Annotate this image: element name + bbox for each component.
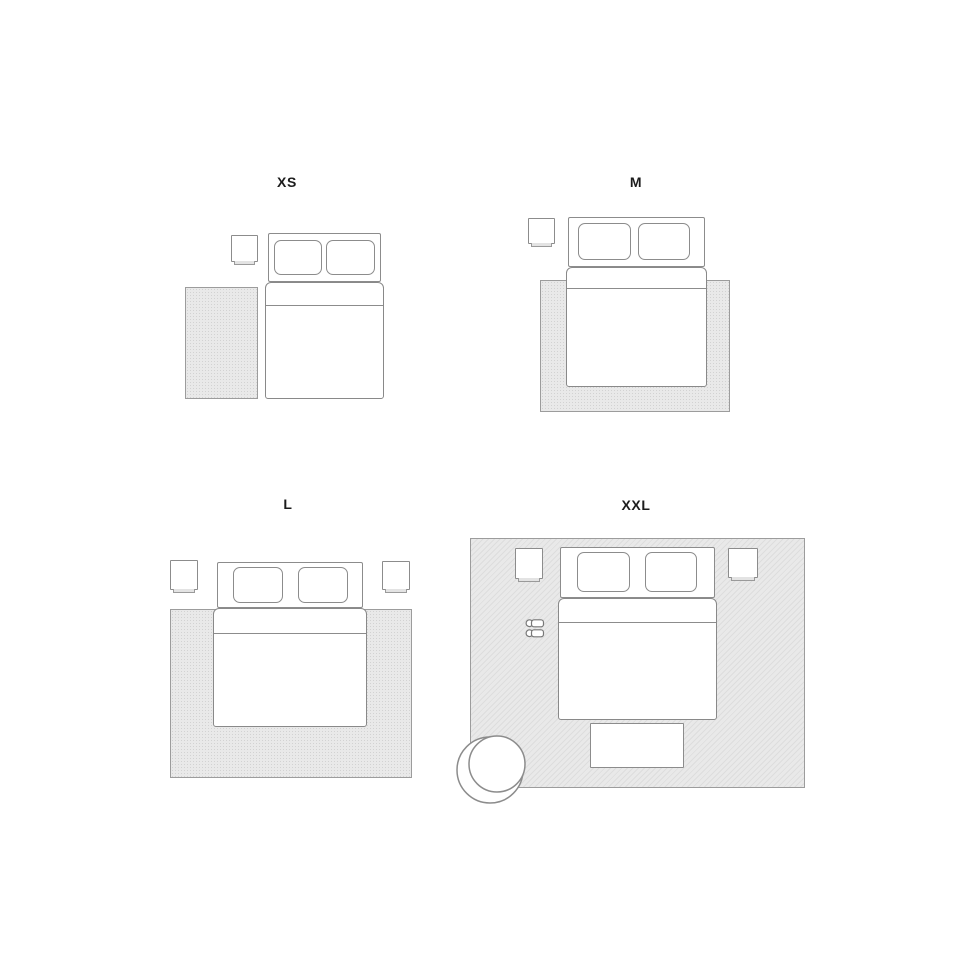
- nightstand-icon: [515, 548, 543, 579]
- size-label-m: M: [630, 174, 642, 190]
- bed-icon: [566, 217, 707, 387]
- pillow-icon: [578, 223, 631, 260]
- rug-size-guide-diagram: XS M L XXL: [0, 0, 970, 971]
- nightstand-icon: [382, 561, 410, 590]
- pillow-icon: [298, 567, 348, 603]
- bed-body: [558, 598, 717, 720]
- nightstand-icon: [728, 548, 758, 578]
- bed-body: [213, 608, 367, 727]
- nightstand-icon: [170, 560, 198, 590]
- pillow-icon: [638, 223, 690, 260]
- size-label-xxl: XXL: [621, 497, 650, 513]
- duvet-fold-line: [559, 599, 716, 623]
- bed-icon: [213, 562, 367, 727]
- slippers-icon: [525, 618, 547, 640]
- pillow-icon: [577, 552, 630, 592]
- bed-body: [265, 282, 384, 399]
- pillow-icon: [326, 240, 375, 275]
- pillow-icon: [274, 240, 322, 275]
- pillow-icon: [233, 567, 283, 603]
- pillow-icon: [645, 552, 697, 592]
- size-label-xs: XS: [277, 174, 297, 190]
- duvet-fold-line: [266, 283, 383, 306]
- nightstand-icon: [231, 235, 258, 262]
- armchair-icon: [450, 728, 535, 813]
- bed-icon: [265, 233, 384, 399]
- duvet-fold-line: [214, 609, 366, 634]
- bed-icon: [558, 547, 717, 720]
- size-label-l: L: [283, 496, 292, 512]
- duvet-fold-line: [567, 268, 706, 289]
- rug-xs: [185, 287, 258, 399]
- bench-icon: [590, 723, 684, 768]
- nightstand-icon: [528, 218, 555, 244]
- bed-body: [566, 267, 707, 387]
